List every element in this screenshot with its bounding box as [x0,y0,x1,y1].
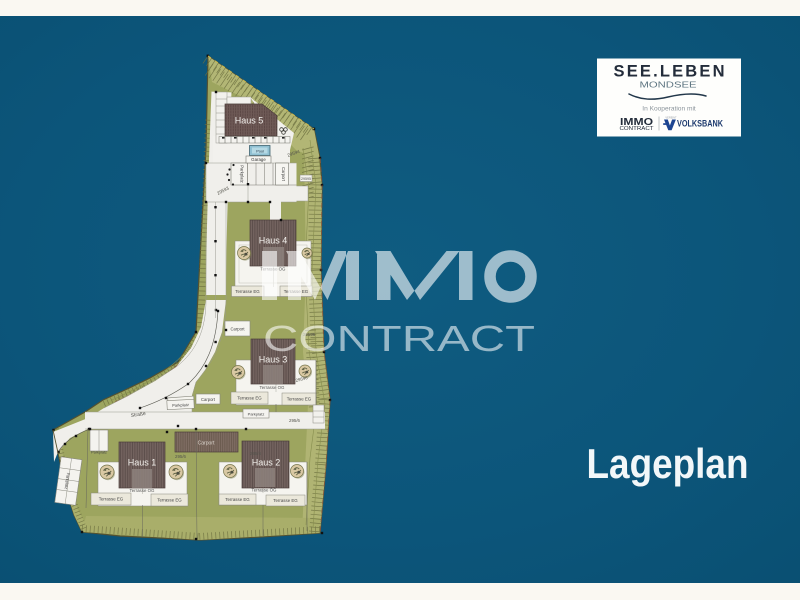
svg-text:Terrasse EG: Terrasse EG [225,497,250,502]
svg-text:Parkplatz: Parkplatz [248,412,265,417]
svg-text:Terrasse EG: Terrasse EG [157,498,182,503]
svg-text:Haus 5: Haus 5 [235,116,264,126]
svg-text:295/6: 295/6 [289,418,301,423]
svg-text:Parkplatz: Parkplatz [172,402,189,408]
svg-text:Parkplatz: Parkplatz [240,165,245,182]
svg-text:Pool: Pool [256,150,264,154]
svg-text:29595: 29595 [301,177,311,181]
svg-text:Terrasse OG: Terrasse OG [252,488,277,493]
svg-text:Terrasse OG: Terrasse OG [130,488,155,493]
svg-text:In Kooperation mit: In Kooperation mit [642,106,696,113]
svg-text:Garage: Garage [251,157,266,162]
svg-text:Carport: Carport [281,167,286,182]
svg-text:Haus 1: Haus 1 [128,458,157,468]
svg-text:CONTRACT: CONTRACT [620,126,655,132]
svg-text:MONDSEE: MONDSEE [640,81,697,90]
svg-text:Terrasse EG: Terrasse EG [99,497,124,502]
svg-text:Terrasse EG: Terrasse EG [287,397,312,402]
svg-text:Terrasse EG: Terrasse EG [235,289,260,294]
svg-text:295/6: 295/6 [175,454,187,459]
svg-text:Carport: Carport [198,441,215,447]
svg-text:Terrasse EG: Terrasse EG [237,396,262,401]
svg-text:Carport: Carport [201,397,216,402]
svg-text:Haus 4: Haus 4 [259,236,288,246]
svg-text:Carport: Carport [231,327,246,332]
svg-text:Lageplan: Lageplan [587,440,749,487]
svg-text:VEREINT: VEREINT [665,115,677,119]
svg-text:295/4: 295/4 [250,451,262,456]
svg-text:Terrasse OG: Terrasse OG [260,385,285,390]
svg-text:SEE.LEBEN: SEE.LEBEN [614,63,725,81]
svg-text:VOLKSBANK: VOLKSBANK [677,119,723,129]
svg-text:Parkplatz: Parkplatz [91,451,107,455]
svg-text:Terrasse EG: Terrasse EG [273,498,298,503]
svg-text:Haus 2: Haus 2 [252,458,281,468]
svg-text:CONTRACT: CONTRACT [263,318,535,359]
